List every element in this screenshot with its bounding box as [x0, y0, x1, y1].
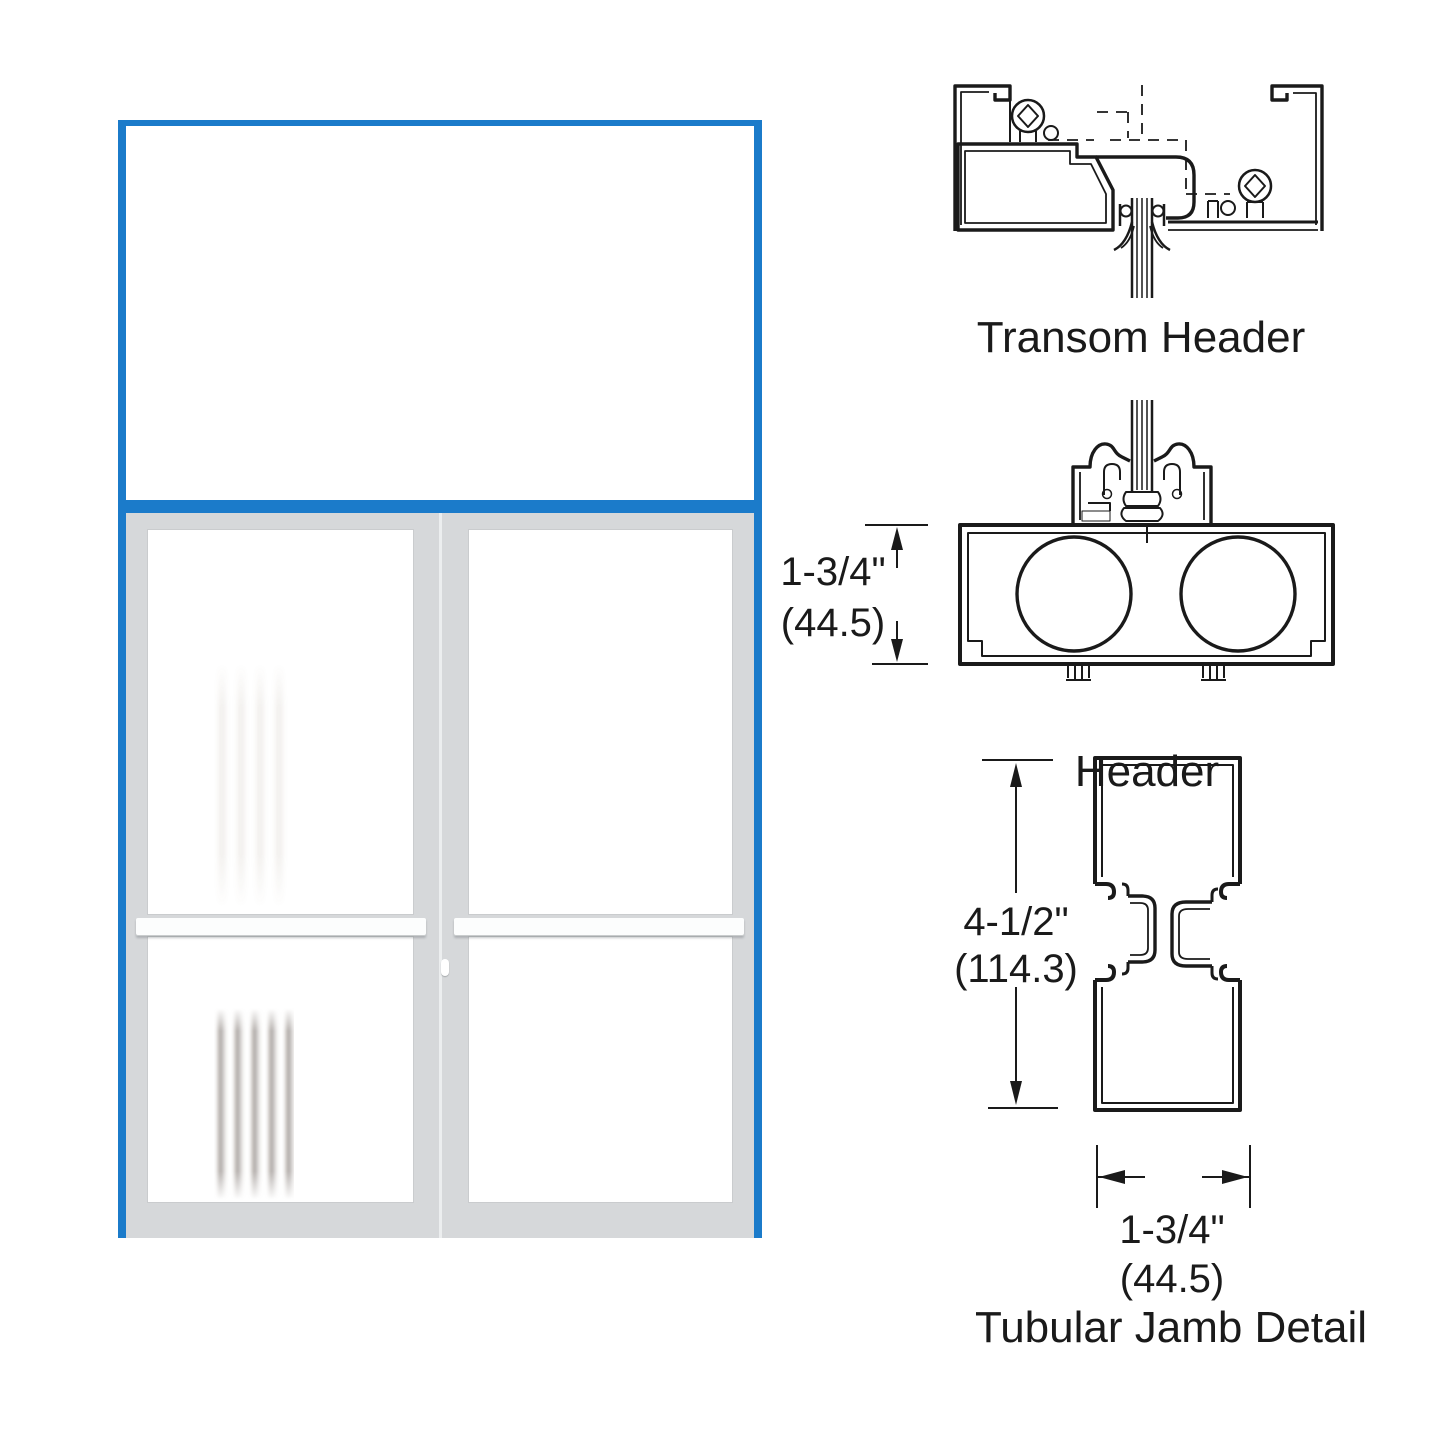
header-dim-metric: (44.5): [781, 601, 886, 645]
gasket-roller-right: [1221, 201, 1235, 215]
jamb-width-dimension: 1-3/4" (44.5): [1097, 1145, 1250, 1301]
glass-right-upper: [468, 529, 733, 915]
transom-glass: [126, 126, 754, 500]
jamb-tube-bottom: [1095, 966, 1240, 1110]
storefront-door-diagram: Transom Header: [0, 0, 1445, 1445]
jamb-height-imperial: 4-1/2": [963, 900, 1068, 944]
anchor-tab-left: [1066, 664, 1091, 681]
screw-boss-right: [1181, 537, 1295, 651]
header-detail: 1-3/4" (44.5): [770, 395, 1350, 695]
transom-header-detail: [935, 70, 1335, 310]
push-bar-left: [136, 918, 426, 936]
push-bar-right: [454, 918, 744, 936]
jamb-height-dimension: 4-1/2" (114.3): [954, 760, 1078, 1108]
door-meeting-stile-seam: [439, 513, 442, 1238]
jamb-width-metric: (44.5): [1120, 1257, 1225, 1301]
header-tube: [960, 525, 1333, 681]
tubular-jamb-detail: 4-1/2" (114.3) 1-3/4" (44.5): [930, 750, 1350, 1310]
double-door-assembly: [126, 513, 754, 1238]
header-dim-imperial: 1-3/4": [780, 550, 885, 594]
glazing-gasket-curl-left: [1121, 206, 1132, 217]
transom-glass-section: [1114, 198, 1170, 298]
glass-left-lower: [147, 936, 414, 1203]
jamb-width-imperial: 1-3/4": [1119, 1208, 1224, 1252]
jamb-interlock: [1122, 884, 1218, 979]
screw-left: [1012, 100, 1058, 142]
head-channel-right: [1272, 86, 1322, 231]
jamb-tube-top: [1095, 758, 1240, 898]
lock-cylinder: [441, 959, 449, 976]
transom-bar: [118, 500, 762, 513]
transom-header-label: Transom Header: [977, 316, 1306, 360]
glass-right-lower: [468, 936, 733, 1203]
hidden-profile-dashed: [1048, 85, 1230, 194]
head-channel-left: [955, 86, 1010, 231]
jamb-label: Tubular Jamb Detail: [975, 1306, 1367, 1350]
anchor-tab-right: [1201, 664, 1226, 681]
glazing-gasket-curl-right: [1153, 206, 1164, 217]
header-dimension: 1-3/4" (44.5): [780, 525, 928, 664]
screw-boss-left: [1017, 537, 1131, 651]
jamb-height-metric: (114.3): [954, 947, 1078, 991]
frame-jamb-left: [118, 120, 126, 1238]
glass-left-upper: [147, 529, 414, 915]
screw-right: [1208, 170, 1271, 218]
header-glass-section: [1132, 400, 1152, 492]
frame-jamb-right: [754, 120, 762, 1238]
door-elevation: [118, 120, 762, 1238]
gasket-roller-left: [1044, 126, 1058, 140]
